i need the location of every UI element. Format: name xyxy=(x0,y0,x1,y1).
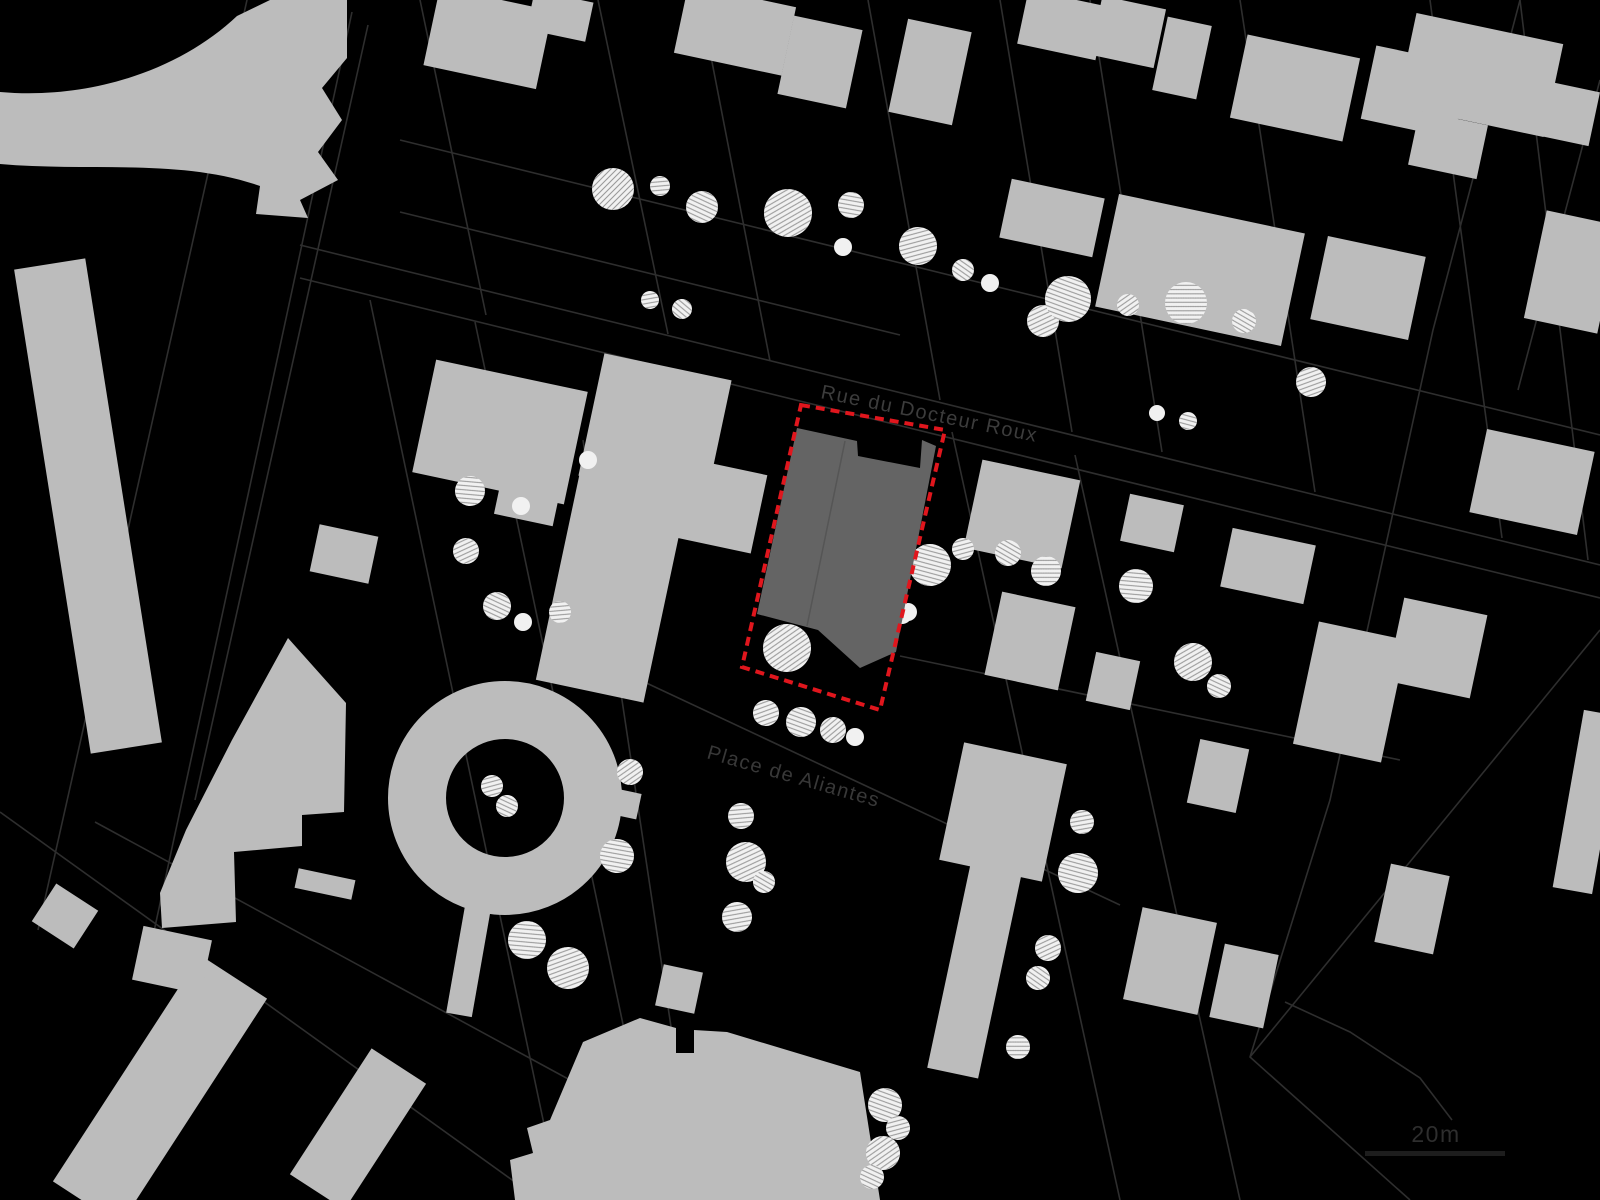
tree-canopy xyxy=(579,451,597,469)
site-plan-map: Rue du Docteur Roux Place de Aliantes 20… xyxy=(0,0,1600,1200)
tree xyxy=(846,728,864,746)
tree xyxy=(514,613,532,631)
building-footprint xyxy=(655,964,703,1013)
tree xyxy=(592,168,634,210)
tree-canopy xyxy=(834,238,852,256)
scale-bar-label: 20m xyxy=(1411,1121,1460,1147)
tree xyxy=(1149,405,1165,421)
site-plan-stage: Rue du Docteur Roux Place de Aliantes 20… xyxy=(0,0,1600,1200)
tree xyxy=(579,451,597,469)
tree xyxy=(834,238,852,256)
tree-canopy xyxy=(981,274,999,292)
tree xyxy=(512,497,530,515)
tree-canopy xyxy=(846,728,864,746)
tree-canopy-hatch xyxy=(592,168,634,210)
scale-bar-line xyxy=(1365,1151,1505,1156)
tree xyxy=(981,274,999,292)
tree-canopy xyxy=(1149,405,1165,421)
tree-canopy xyxy=(512,497,530,515)
tree-canopy xyxy=(514,613,532,631)
